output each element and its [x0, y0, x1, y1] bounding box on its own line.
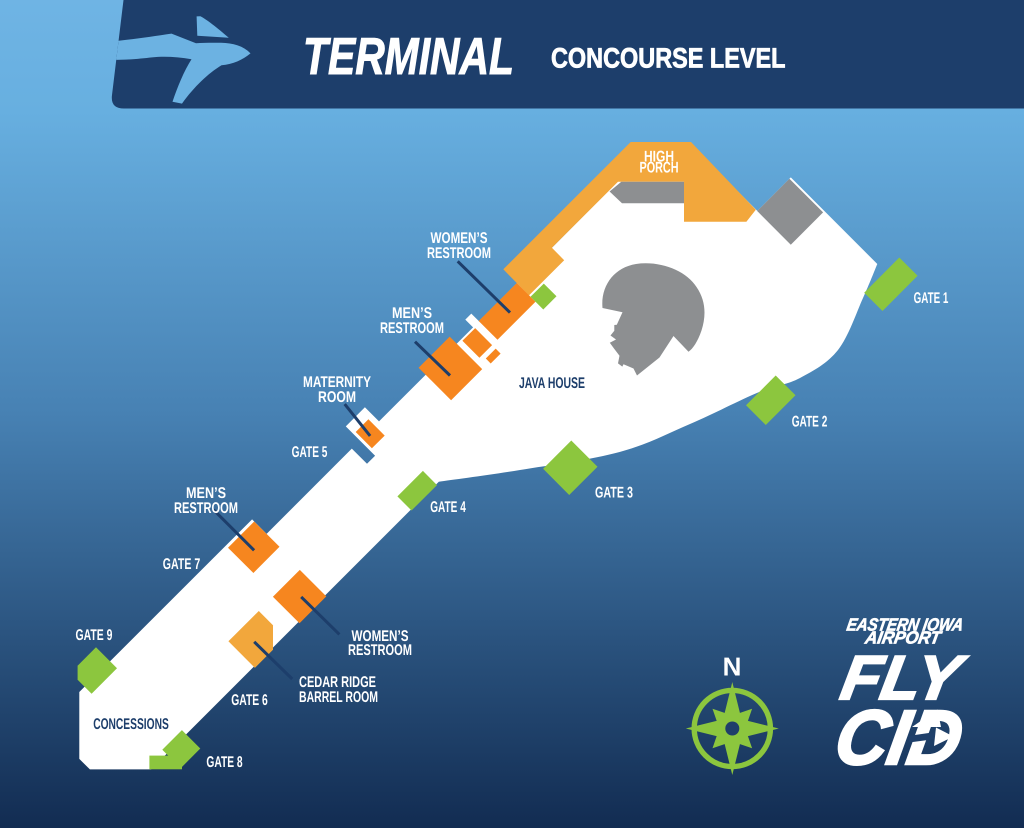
svg-text:GATE 6: GATE 6	[231, 692, 268, 709]
svg-text:ROOM: ROOM	[318, 389, 356, 406]
svg-text:CONCOURSE LEVEL: CONCOURSE LEVEL	[551, 43, 786, 74]
svg-text:GATE 3: GATE 3	[595, 485, 633, 502]
svg-text:JAVA HOUSE: JAVA HOUSE	[519, 375, 585, 392]
svg-text:GATE 4: GATE 4	[430, 499, 466, 516]
svg-text:GATE 7: GATE 7	[163, 556, 201, 573]
svg-text:RESTROOM: RESTROOM	[348, 642, 412, 659]
svg-text:RESTROOM: RESTROOM	[427, 245, 491, 262]
svg-text:BARREL ROOM: BARREL ROOM	[299, 689, 378, 706]
svg-text:N: N	[723, 651, 742, 681]
svg-text:RESTROOM: RESTROOM	[174, 500, 238, 517]
svg-text:GATE 1: GATE 1	[914, 290, 949, 307]
svg-text:GATE 5: GATE 5	[292, 444, 328, 461]
svg-text:PORCH: PORCH	[640, 160, 679, 177]
svg-text:RESTROOM: RESTROOM	[380, 320, 444, 337]
svg-text:GATE 8: GATE 8	[206, 754, 243, 771]
svg-text:GATE 9: GATE 9	[76, 627, 113, 644]
svg-text:CONCESSIONS: CONCESSIONS	[93, 716, 169, 733]
svg-text:GATE 2: GATE 2	[792, 414, 828, 431]
svg-text:TERMINAL: TERMINAL	[303, 28, 514, 86]
